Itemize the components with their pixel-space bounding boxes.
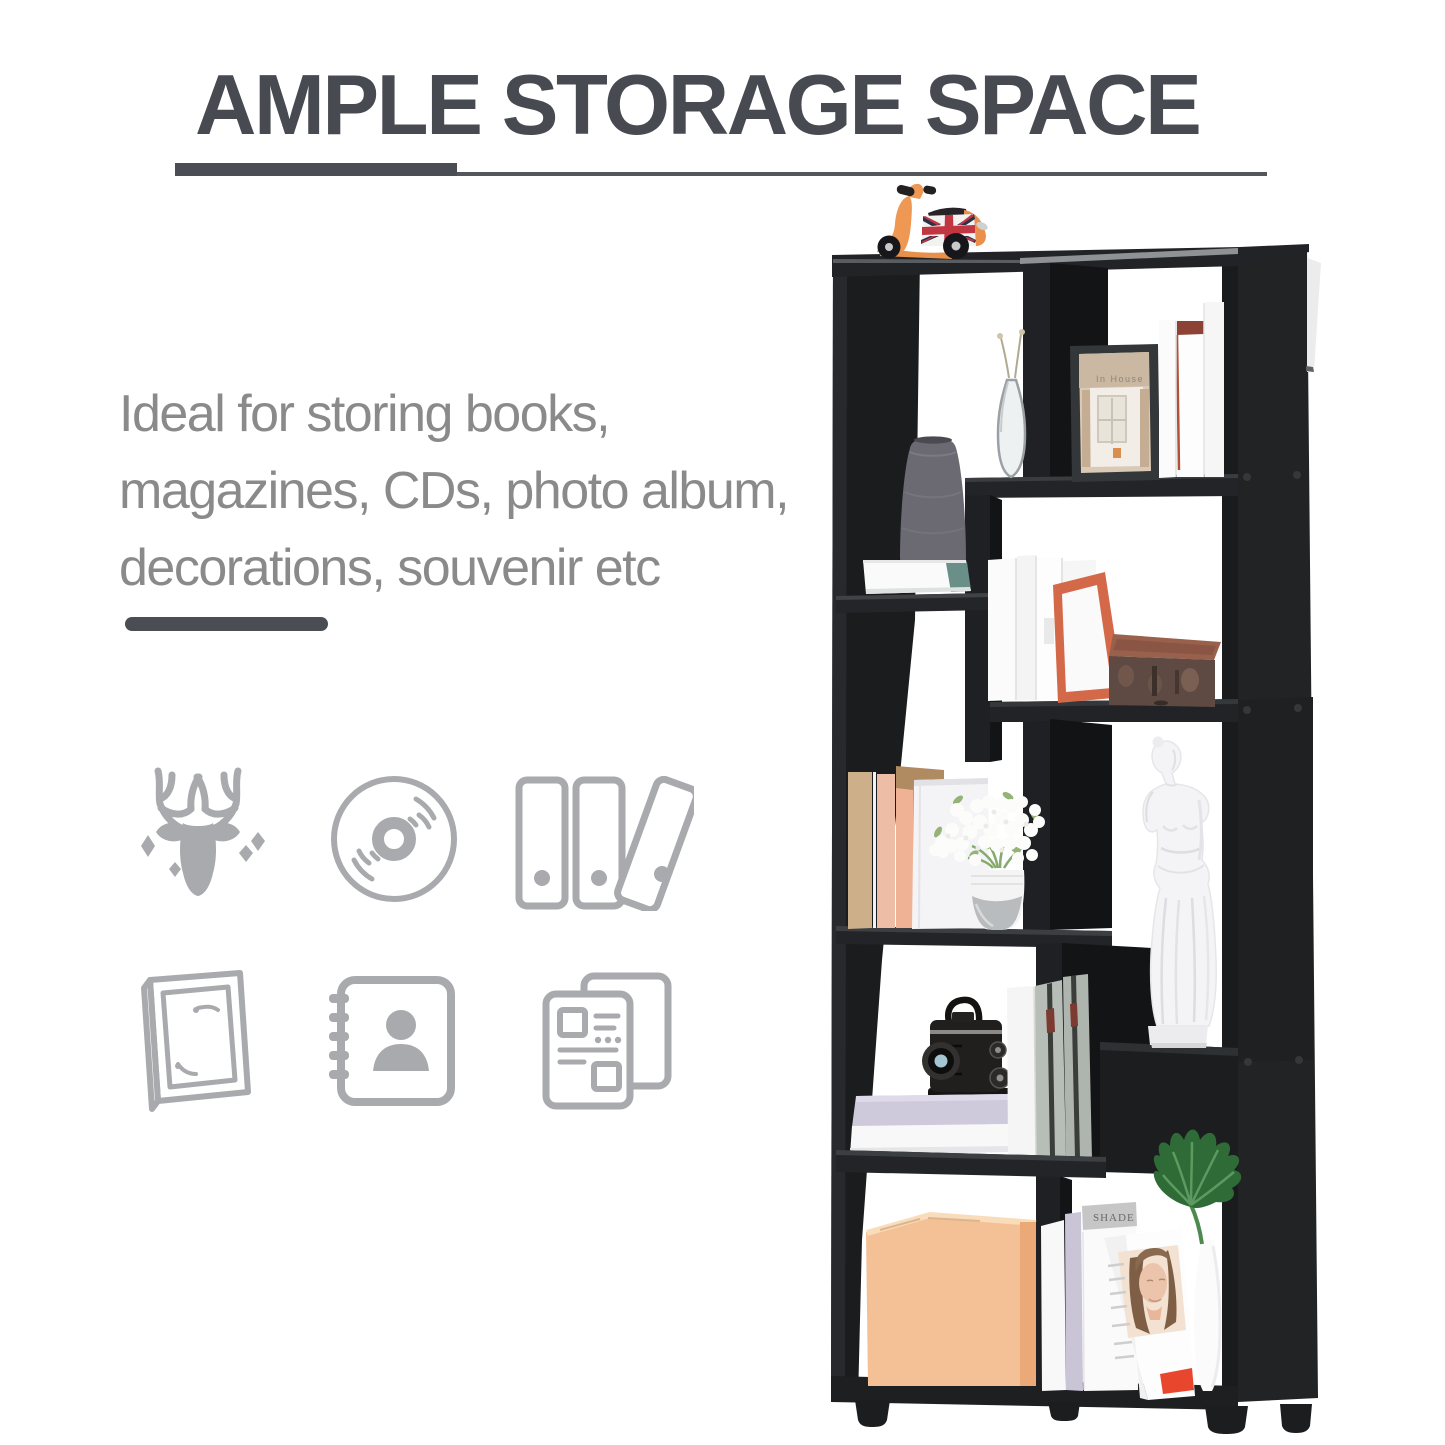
svg-text:SHADE: SHADE xyxy=(1093,1212,1135,1224)
svg-text:In House: In House xyxy=(1096,374,1144,384)
